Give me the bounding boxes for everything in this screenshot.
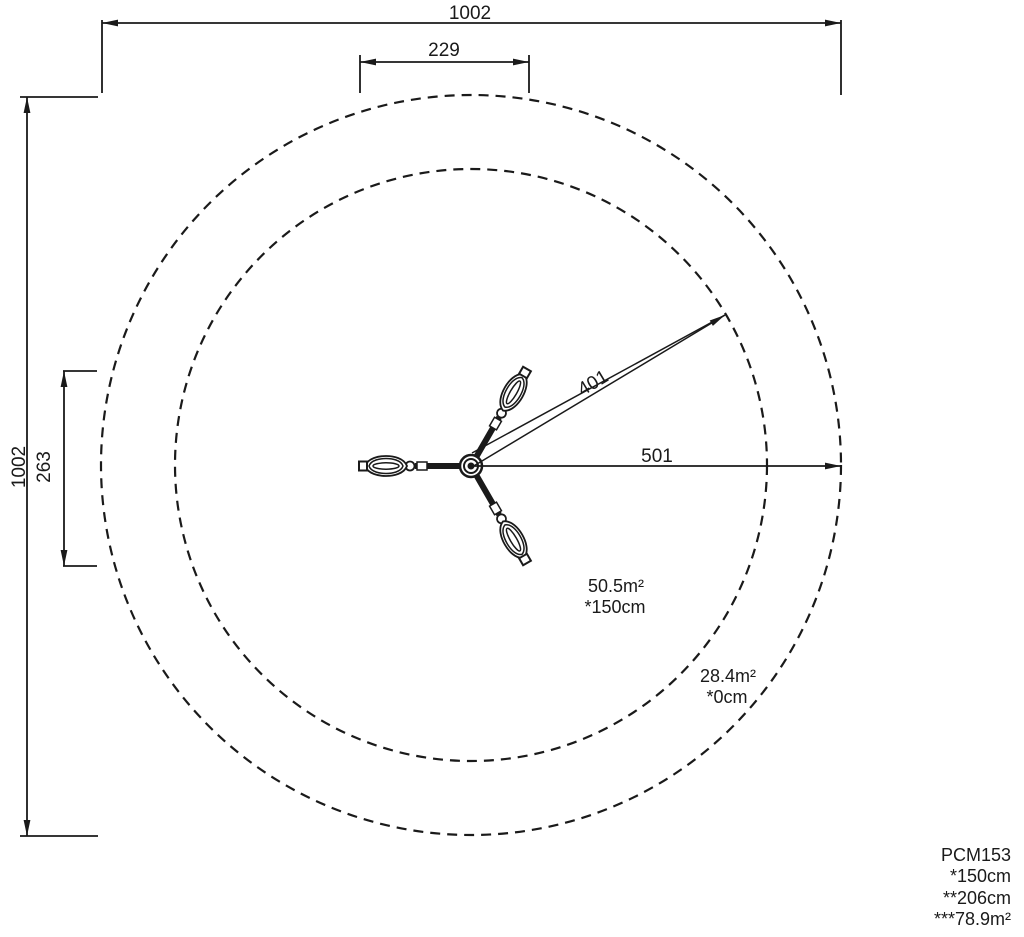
clear-zone-annotation: 28.4m² *0cm xyxy=(700,666,756,707)
arrowhead-left xyxy=(360,59,376,66)
dim-overall-height-label: 1002 xyxy=(9,446,30,488)
legend-block: PCM153 *150cm **206cm ***78.9m² xyxy=(934,845,1011,929)
clear-zone-note-label: *0cm xyxy=(706,687,747,707)
arm-sleeve xyxy=(417,462,427,470)
arrowhead-right xyxy=(825,463,841,470)
product-code: PCM153 xyxy=(941,845,1011,865)
arrowhead-up xyxy=(24,97,31,113)
technical-drawing: 1002 229 1002 263 501 401 xyxy=(0,0,1024,937)
dim-safety-zone-radius: 501 xyxy=(471,446,841,469)
spinner-arm-left xyxy=(359,456,461,476)
arrowhead-left xyxy=(102,20,118,27)
arrowhead-right xyxy=(513,59,529,66)
dim-hatched-radius-label: 401 xyxy=(574,366,612,400)
arrowhead xyxy=(710,315,725,326)
hub-center xyxy=(468,463,475,470)
legend-line-3: ***78.9m² xyxy=(934,909,1011,929)
dim-equipment-width-label: 229 xyxy=(428,40,460,61)
spinner-arm-upper-right xyxy=(467,364,535,462)
dim-overall-width-label: 1002 xyxy=(449,3,491,24)
legend-line-1: *150cm xyxy=(950,866,1011,886)
hatched-zone-note-label: *150cm xyxy=(584,597,645,617)
dim-equipment-width: 229 xyxy=(360,40,529,93)
dim-safety-radius-label: 501 xyxy=(641,446,673,467)
clear-zone-area-label: 28.4m² xyxy=(700,666,756,686)
spinner-arm-lower-right xyxy=(467,470,535,568)
arrowhead-down xyxy=(61,550,68,566)
arrowhead-right xyxy=(825,20,841,27)
dim-equipment-height-label: 263 xyxy=(34,451,55,483)
legend-line-2: **206cm xyxy=(943,888,1011,908)
spinner-hub xyxy=(460,455,482,477)
arrowhead-up xyxy=(61,371,68,387)
dim-overall-width: 1002 xyxy=(102,3,841,95)
dim-equipment-height: 263 xyxy=(34,371,97,566)
seat-tip-cap xyxy=(359,462,367,471)
hatched-zone-area-label: 50.5m² xyxy=(588,576,644,596)
arrowhead-down xyxy=(24,820,31,836)
hatched-zone-annotation: 50.5m² *150cm xyxy=(584,576,645,617)
